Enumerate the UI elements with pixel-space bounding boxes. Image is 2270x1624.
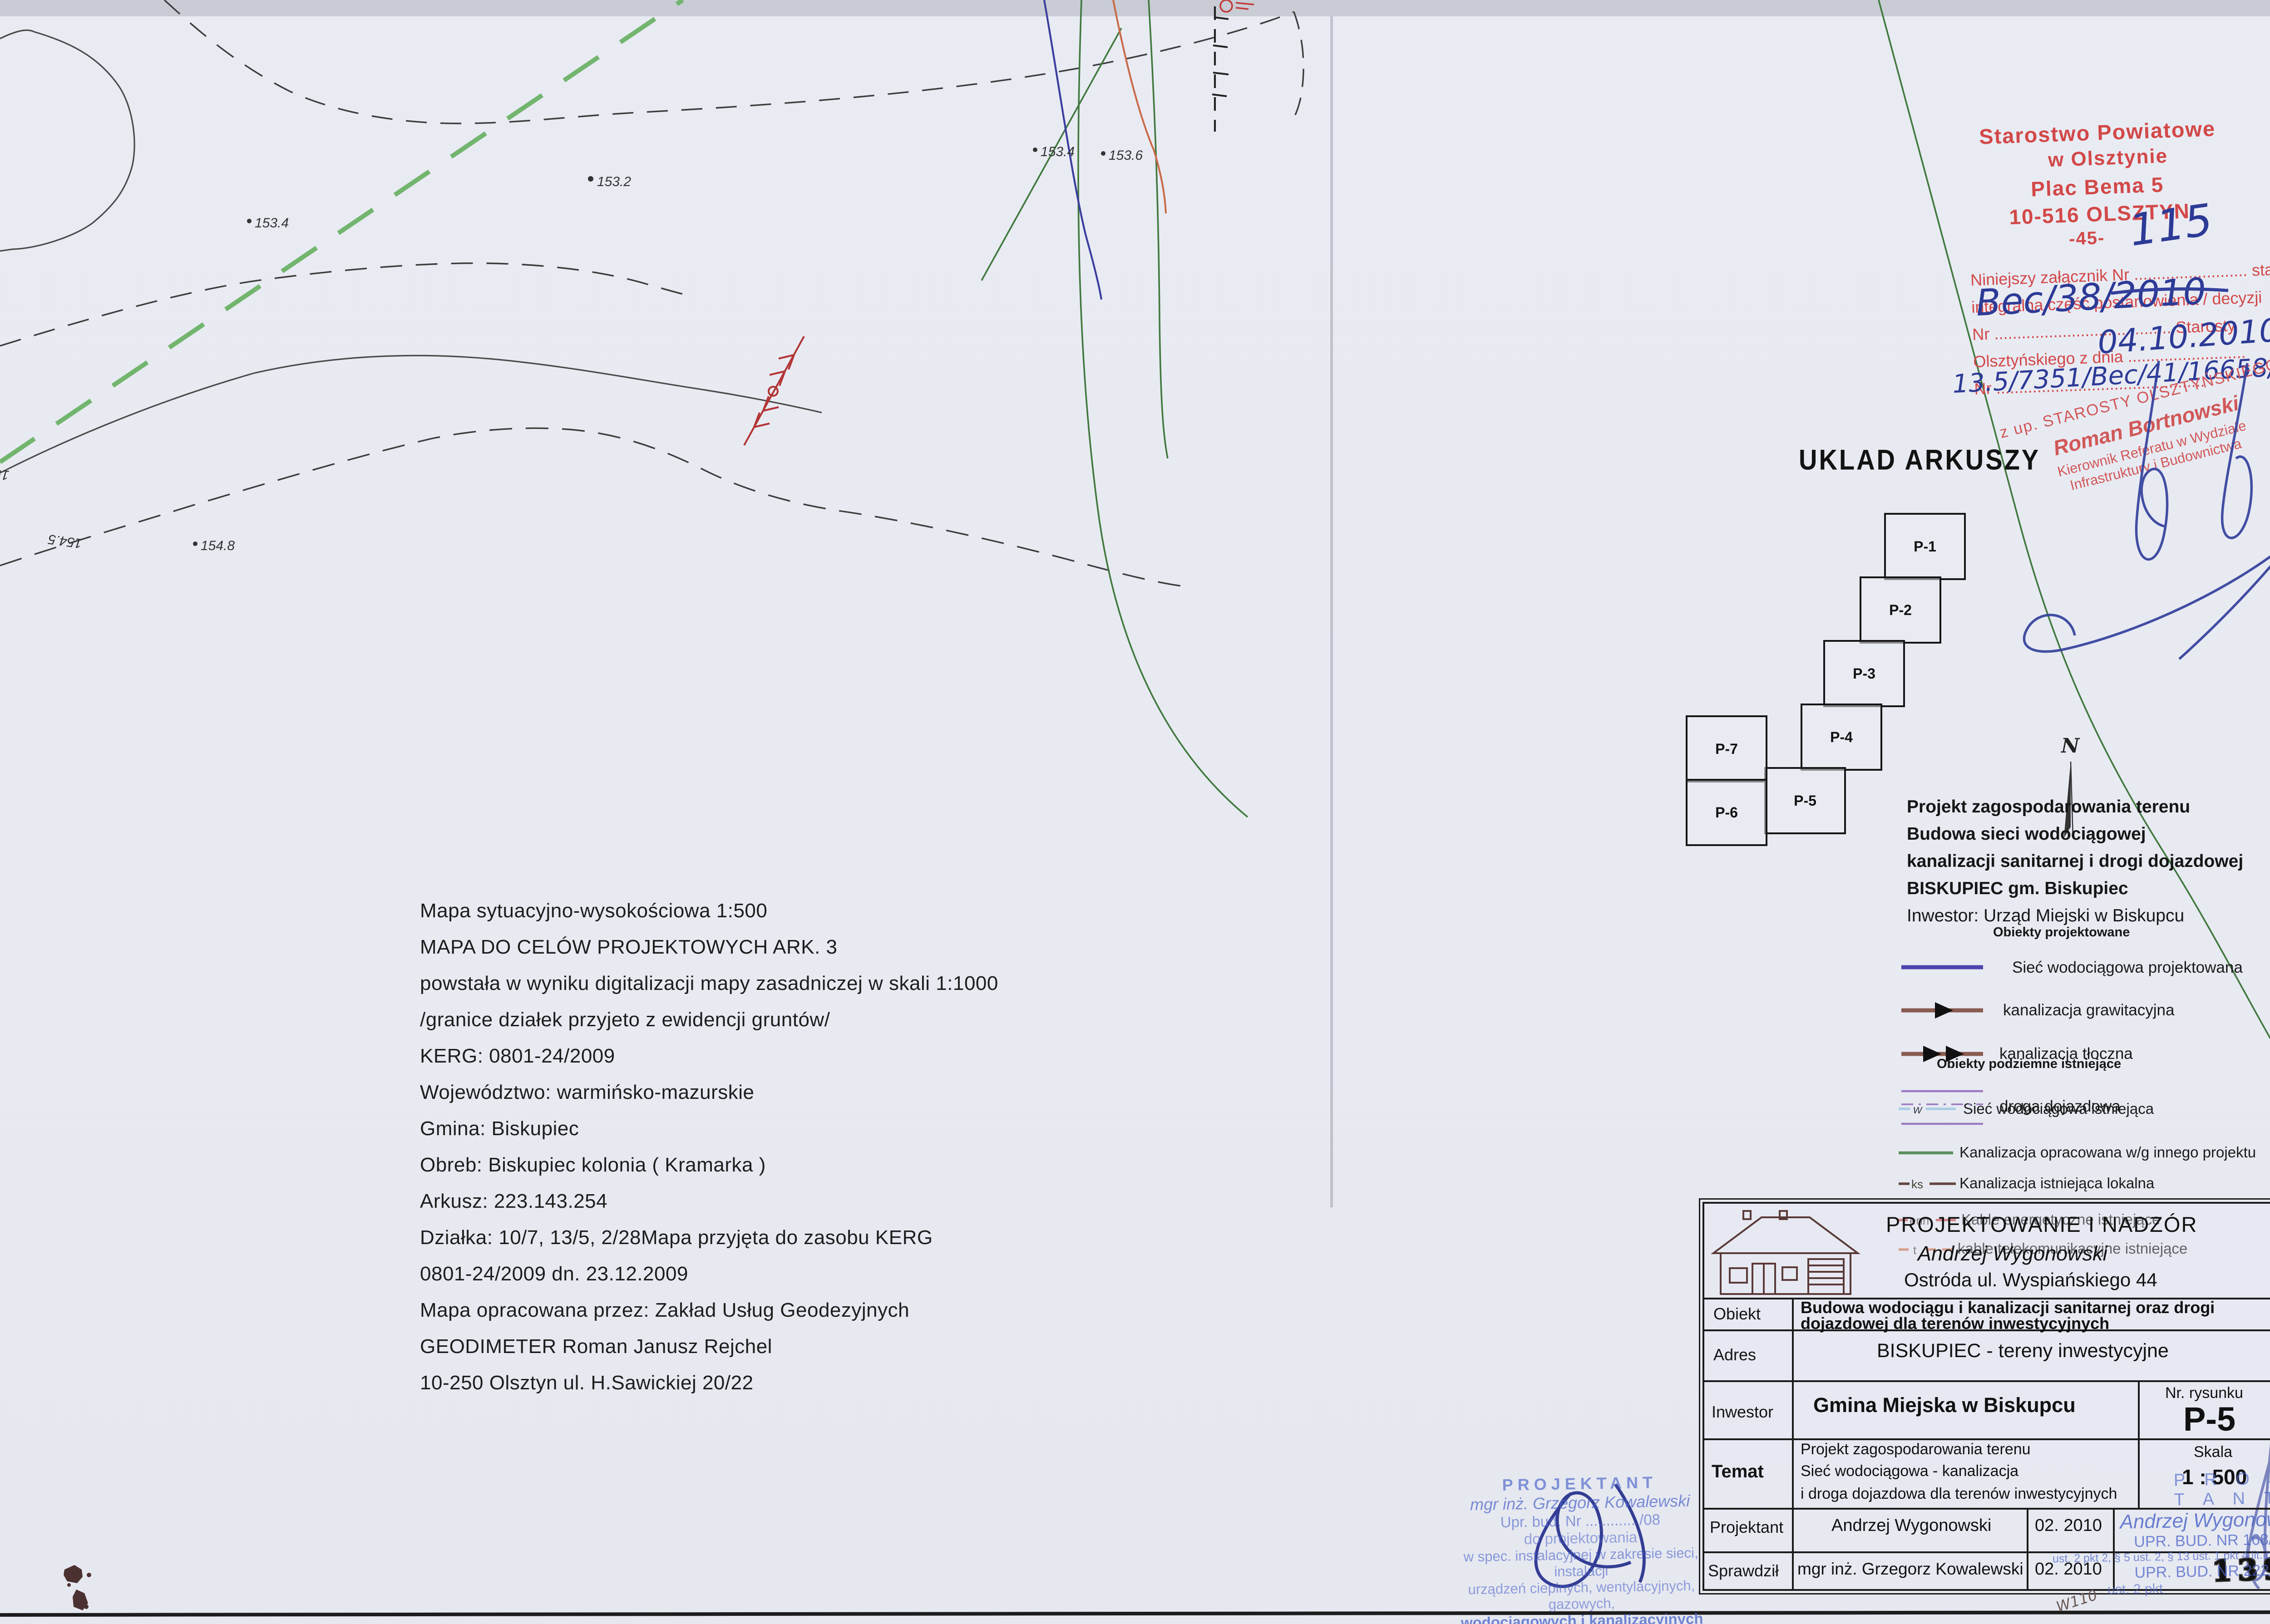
temat-line3: i droga dojazdowa dla terenów inwestycyj…	[1801, 1485, 2117, 1503]
table-line	[2113, 1508, 2115, 1589]
company-address: Ostróda ul. Wyspiańskiego 44	[1904, 1269, 2157, 1291]
scanned-survey-map-sheet: 153.4 153.2 153.4 153.6 154.8 154.5 154 …	[0, 0, 2270, 1624]
legend-symbol-local-sewer: ks	[1899, 1177, 1956, 1191]
skala-label: Skala	[2194, 1443, 2232, 1461]
projektant-label: Projektant	[1710, 1518, 1783, 1537]
table-line	[1704, 1380, 2270, 1382]
designer-stamp-line: urządzeń cieplnych, wentylacyjnych, gazo…	[1445, 1577, 1718, 1614]
table-line	[1704, 1438, 2270, 1440]
legend-symbol-pressure-sewer	[1901, 1046, 1983, 1062]
designer-stamp-line: w spec. instalacyjnej w zakresie sieci, …	[1445, 1545, 1717, 1582]
obiekt-value-line2: dojazdowej dla terenów inwestycyjnych	[1801, 1314, 2109, 1333]
approval-stamp: P R O J E K T A N T Andrzej Wygonowski U…	[2115, 1467, 2270, 1598]
inwestor-label: Inwestor	[1712, 1403, 1773, 1422]
temat-line1: Projekt zagospodarowania terenu	[1801, 1441, 2031, 1458]
svg-text:ks: ks	[1911, 1177, 1923, 1191]
svg-text:w: w	[1913, 1102, 1923, 1116]
legend-symbol-gravity-sewer	[1901, 1002, 1983, 1019]
projektant-date: 02. 2010	[2035, 1516, 2102, 1535]
sprawdzil-label: Sprawdził	[1708, 1561, 1779, 1580]
temat-line2: Sieć wodociągowa - kanalizacja	[1801, 1462, 2018, 1480]
projektant-name: Andrzej Wygonowski	[1831, 1516, 1991, 1535]
company-name: PROJEKTOWANIE I NADZÓR	[1886, 1212, 2197, 1237]
drawing-number-value: P-5	[2183, 1400, 2235, 1438]
adres-value: BISKUPIEC - tereny inwestycyjne	[1877, 1340, 2169, 1362]
approval-stamp-line: ust. 2 pkt	[2107, 1578, 2270, 1598]
company-owner: Andrzej Wygonowski	[1918, 1242, 2107, 1265]
approval-stamp-title: P R O J E K T A N T	[2174, 1467, 2270, 1510]
table-line	[1792, 1298, 1794, 1589]
obiekt-label: Obiekt	[1713, 1304, 1761, 1324]
temat-label: Temat	[1712, 1462, 1764, 1482]
adres-label: Adres	[1713, 1345, 1756, 1364]
designer-stamp: PROJEKTANT mgr inż. Grzegorz Kowalewski …	[1443, 1472, 1718, 1624]
approval-stamp-name: Andrzej Wygonowski	[2120, 1506, 2270, 1534]
inwestor-value: Gmina Miejska w Biskupcu	[1813, 1393, 2076, 1417]
table-line	[2027, 1508, 2028, 1589]
house-icon	[1711, 1210, 1860, 1296]
sprawdzil-name: mgr inż. Grzegorz Kowalewski	[1797, 1560, 2023, 1579]
